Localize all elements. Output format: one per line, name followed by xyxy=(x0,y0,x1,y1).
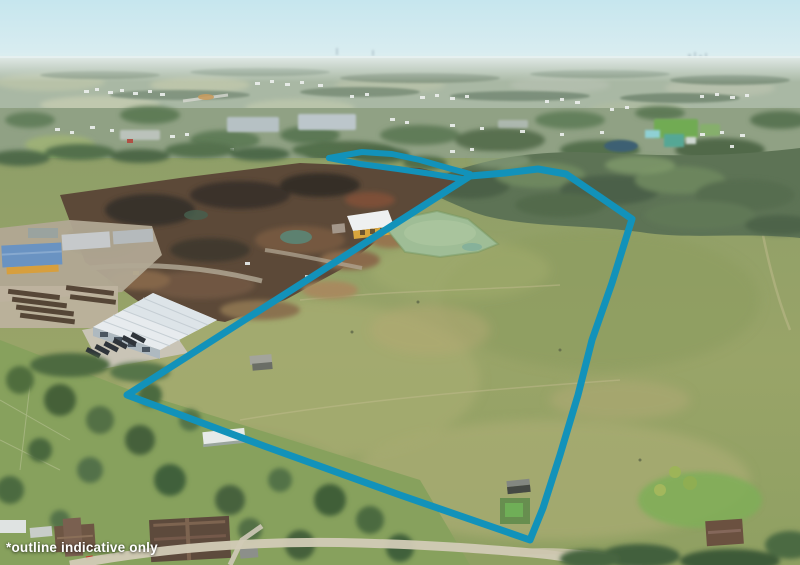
blue-roof-shed xyxy=(1,242,62,274)
aerial-photo-canvas xyxy=(0,0,800,565)
aerial-photo: *outline indicative only xyxy=(0,0,800,565)
disclaimer-label: *outline indicative only xyxy=(6,540,158,555)
quarry-pond xyxy=(280,230,312,244)
distant-dam xyxy=(604,140,638,152)
paddock-shed-west xyxy=(249,354,272,371)
house-southeast xyxy=(705,519,744,547)
red-roof-house xyxy=(127,139,133,143)
